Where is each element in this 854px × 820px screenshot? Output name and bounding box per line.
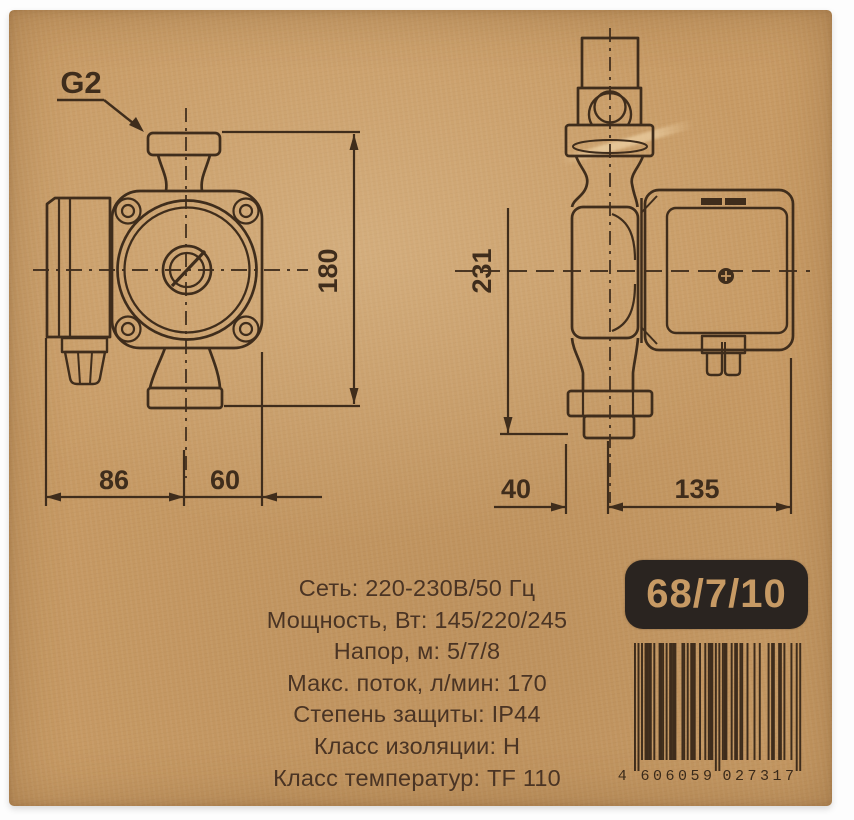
barcode-bars <box>634 643 801 771</box>
model-badge: 68/7/10 <box>625 560 808 629</box>
spec-line-insulation: Класс изоляции: Н <box>227 731 607 763</box>
cover-screw <box>718 268 734 284</box>
spec-line-head: Напор, м: 5/7/8 <box>227 636 607 668</box>
spec-list: Сеть: 220-230В/50 Гц Мощность, Вт: 145/2… <box>227 573 607 794</box>
top-flange <box>148 133 220 155</box>
dim-side-depth-right: 135 <box>674 474 719 504</box>
dimension-lines <box>46 100 791 514</box>
terminal-box <box>47 198 110 337</box>
barcode-digit-group: 027317 <box>720 768 800 785</box>
dim-front-height: 180 <box>313 248 343 293</box>
package-photo: G2 86 60 180 231 40 135 Сеть: 220-230В/5… <box>0 0 854 820</box>
model-badge-text: 68/7/10 <box>646 572 786 617</box>
shaft-hub <box>163 246 211 294</box>
spec-line-protection: Степень защиты: IP44 <box>227 699 607 731</box>
centerlines <box>33 28 810 503</box>
spec-line-temp-class: Класс температур: TF 110 <box>227 763 607 795</box>
spec-line-max-flow: Макс. поток, л/мин: 170 <box>227 668 607 700</box>
spec-line-wattage: Мощность, Вт: 145/220/245 <box>227 605 607 637</box>
dim-side-height: 231 <box>467 248 497 293</box>
technical-drawing: G2 86 60 180 231 40 135 <box>0 0 854 560</box>
vent-slot <box>725 198 746 205</box>
pump-side-view <box>566 38 793 438</box>
spec-line-power-supply: Сеть: 220-230В/50 Гц <box>227 573 607 605</box>
dim-front-width-left: 86 <box>99 465 129 495</box>
barcode-digit-group: 606059 <box>638 768 718 785</box>
box-cable-gland <box>702 336 745 375</box>
g2-leader <box>57 100 133 123</box>
dim-front-width-right: 60 <box>210 465 240 495</box>
dim-side-depth-left: 40 <box>501 474 531 504</box>
barcode <box>634 643 802 773</box>
bottom-flange <box>148 388 222 408</box>
vent-slot <box>701 198 722 205</box>
dimension-arrowheads <box>46 117 791 512</box>
thread-size-label: G2 <box>60 65 101 100</box>
cable-gland <box>62 338 107 384</box>
barcode-digit-group: 4 <box>616 768 632 785</box>
barcode-digits: 4 606059 027317 <box>610 768 820 786</box>
